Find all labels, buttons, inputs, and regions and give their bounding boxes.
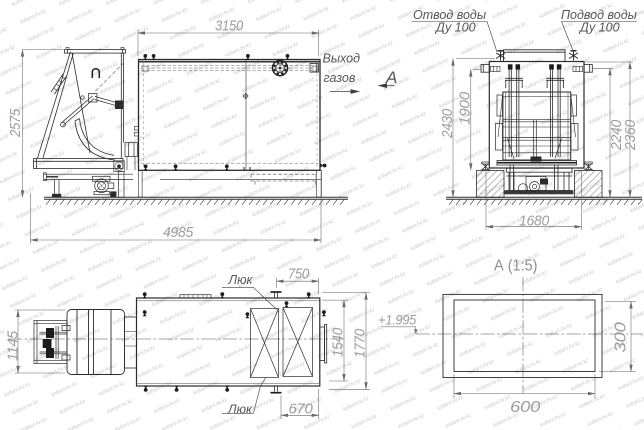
svg-text:А: А	[385, 68, 397, 87]
svg-text:+1.995: +1.995	[378, 312, 416, 328]
svg-text:1145: 1145	[5, 330, 22, 361]
svg-text:А (1:5): А (1:5)	[494, 258, 538, 275]
svg-text:300: 300	[613, 322, 630, 352]
svg-text:750: 750	[288, 266, 310, 283]
svg-text:4985: 4985	[163, 224, 194, 241]
svg-text:1770: 1770	[352, 328, 369, 358]
svg-text:600: 600	[510, 399, 540, 416]
svg-text:2575: 2575	[7, 108, 24, 138]
svg-text:газов: газов	[324, 71, 356, 85]
svg-text:Люк: Люк	[228, 273, 254, 287]
svg-text:2430: 2430	[439, 108, 456, 139]
svg-text:1680: 1680	[519, 213, 550, 230]
svg-text:1540: 1540	[330, 327, 347, 357]
svg-text:3150: 3150	[215, 18, 244, 35]
svg-text:2360: 2360	[622, 119, 639, 151]
svg-text:670: 670	[289, 401, 314, 418]
svg-text:Ду 100: Ду 100	[578, 21, 620, 35]
svg-text:Ду 100: Ду 100	[434, 21, 476, 35]
svg-text:1900: 1900	[457, 91, 474, 125]
svg-text:Люк: Люк	[227, 403, 253, 417]
svg-text:Выход: Выход	[323, 52, 361, 66]
